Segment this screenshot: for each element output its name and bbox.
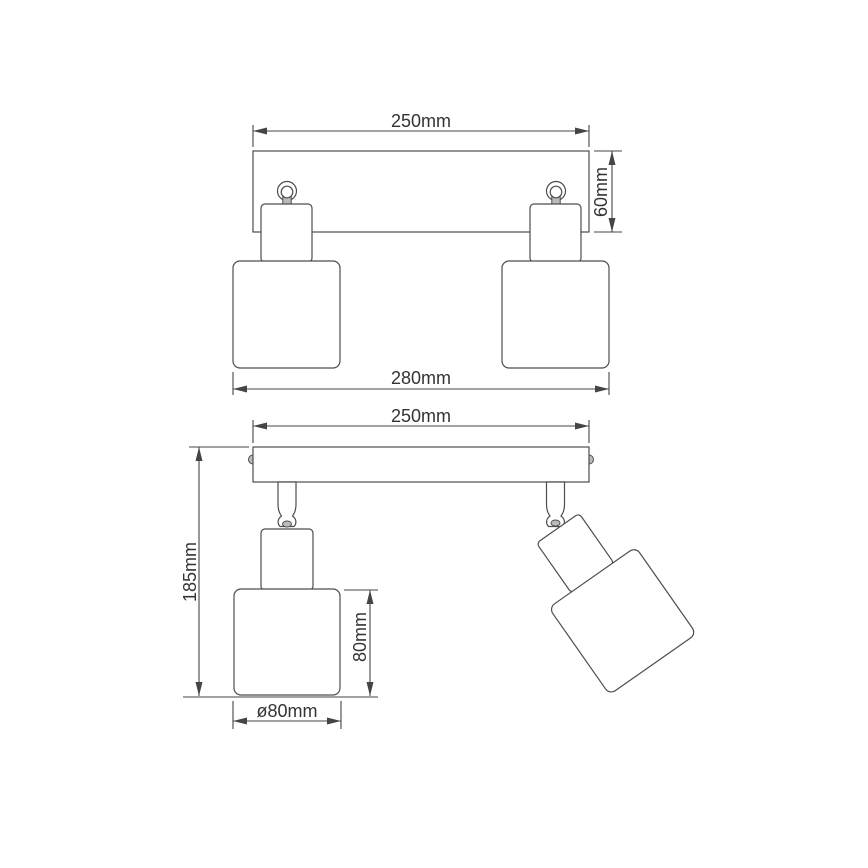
dim-label-side-bar-width: 250mm <box>391 406 451 426</box>
side-view: 250mm 185mm 80mm ø80mm <box>180 406 696 729</box>
mounting-bar-side <box>253 447 589 482</box>
dim-label-side-overall-height: 185mm <box>180 542 200 602</box>
spotlight-dimension-drawing: 250mm 60mm 280mm <box>0 0 868 868</box>
dim-label-front-overall-width: 280mm <box>391 368 451 388</box>
technical-drawing-canvas: 250mm 60mm 280mm <box>0 0 868 868</box>
dimension-front-bar-height: 60mm <box>591 151 622 232</box>
lamp-socket-left-front <box>261 204 312 262</box>
swivel-ring-inner-right-icon <box>550 186 562 198</box>
swivel-ring-inner-left-icon <box>281 186 293 198</box>
dimension-side-shade-height: 80mm <box>344 590 378 696</box>
front-view: 250mm 60mm 280mm <box>233 111 622 395</box>
lamp-shade-left-side <box>234 589 340 695</box>
dim-label-front-bar-width: 250mm <box>391 111 451 131</box>
dim-label-side-shade-height: 80mm <box>350 612 370 662</box>
dimension-front-bar-width: 250mm <box>253 111 589 147</box>
ball-joint-right-icon <box>551 520 560 526</box>
swivel-stem-left <box>278 482 296 527</box>
lamp-socket-left-side <box>261 529 313 590</box>
dim-label-front-bar-height: 60mm <box>591 167 611 217</box>
tilted-lamp-head <box>514 498 696 695</box>
lamp-socket-right-front <box>530 204 581 262</box>
lamp-shade-left-front <box>233 261 340 368</box>
ball-joint-left-icon <box>283 521 292 527</box>
lamp-shade-right-front <box>502 261 609 368</box>
dimension-side-shade-diameter: ø80mm <box>233 701 341 729</box>
dim-label-side-shade-diameter: ø80mm <box>256 701 317 721</box>
dimension-front-overall-width: 280mm <box>233 368 609 395</box>
dimension-side-bar-width: 250mm <box>253 406 589 443</box>
